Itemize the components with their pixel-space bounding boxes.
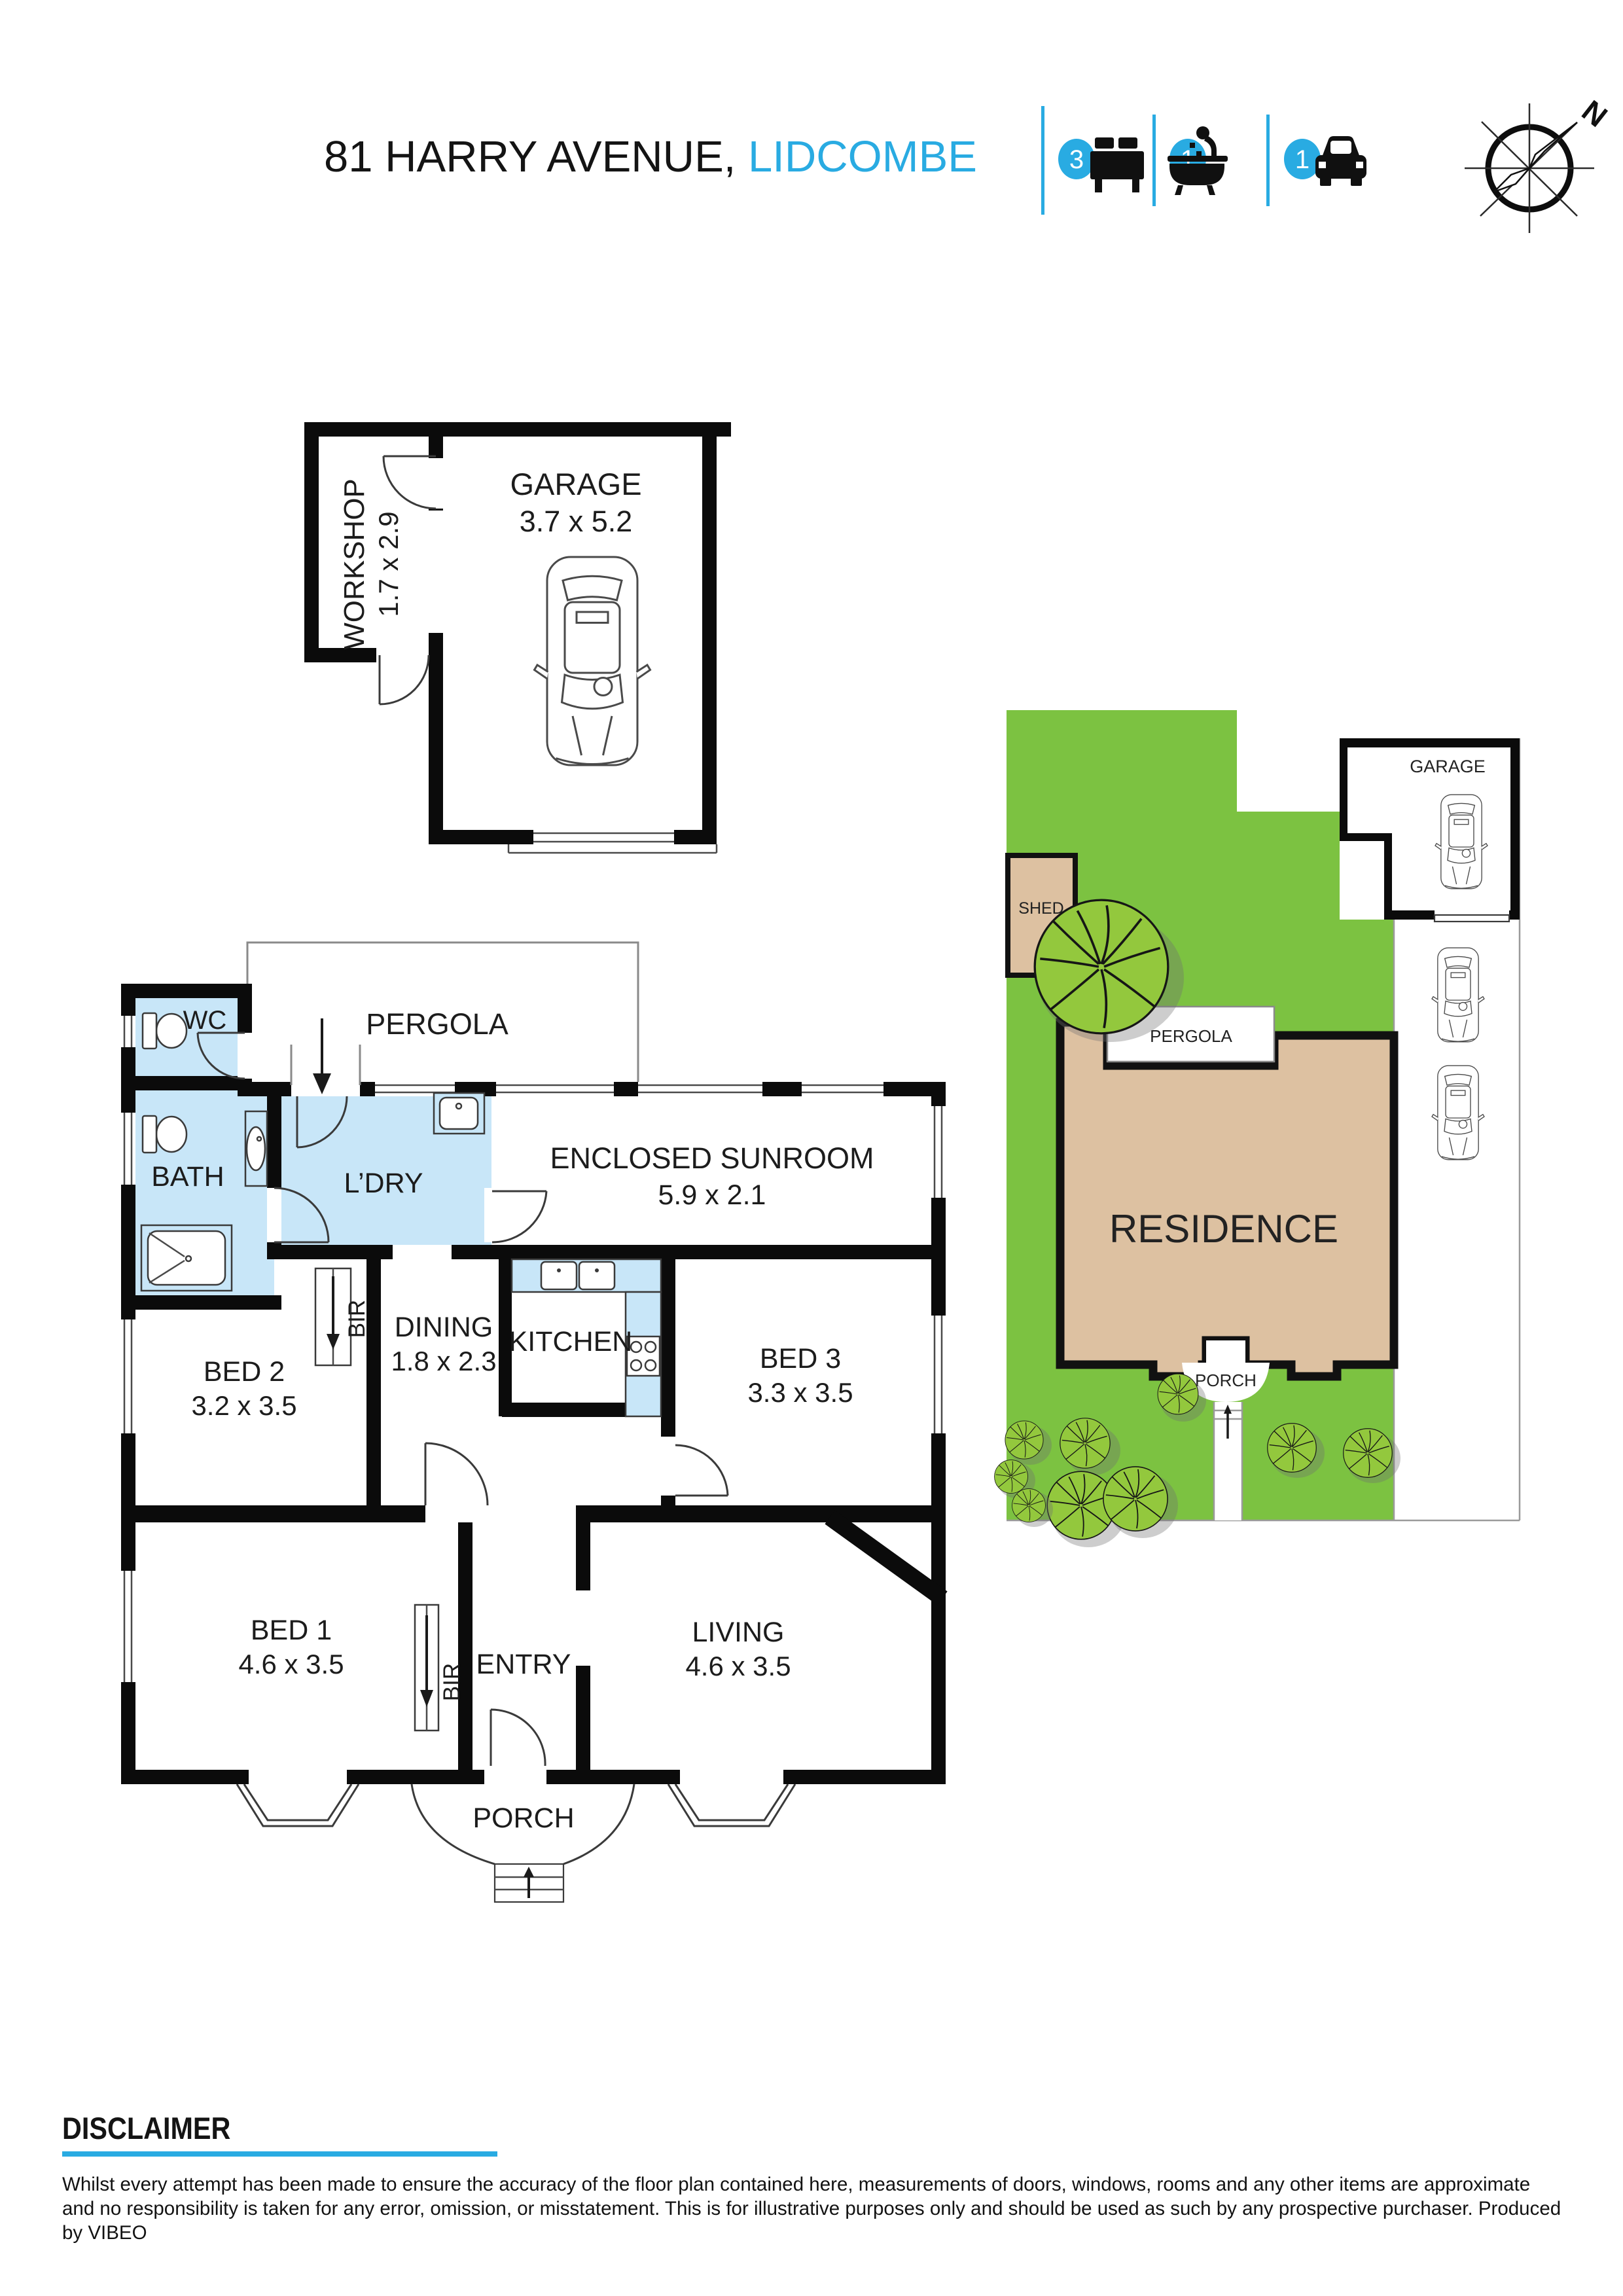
divider — [1041, 106, 1044, 215]
tree — [1035, 900, 1168, 1033]
car-2 — [1432, 948, 1484, 1042]
divider — [1152, 115, 1156, 206]
site-porch-label: PORCH — [1195, 1371, 1257, 1390]
workshop-label: WORKSHOP — [338, 478, 370, 650]
living-chamfer-wall — [830, 1517, 942, 1598]
bed2-dim: 3.2 x 3.5 — [191, 1390, 296, 1421]
header: 81 HARRY AVENUE, LIDCOMBE 3 — [324, 94, 1614, 233]
tree — [995, 1460, 1028, 1494]
disclaimer-section: DISCLAIMER Whilst every attempt has been… — [62, 2110, 1567, 2245]
laundry-sink-icon — [434, 1093, 484, 1134]
workshop-dim: 1.7 x 2.9 — [373, 511, 404, 617]
site-pergola-label: PERGOLA — [1150, 1026, 1232, 1046]
window — [121, 1016, 135, 1047]
window — [121, 1113, 135, 1185]
window — [638, 1082, 762, 1096]
car-1 — [1435, 795, 1488, 889]
tree — [1158, 1374, 1198, 1414]
bath-label: BATH — [151, 1161, 224, 1193]
floorplan-page: 81 HARRY AVENUE, LIDCOMBE 3 — [0, 0, 1623, 2296]
window — [931, 1106, 946, 1198]
bed3-dim: 3.3 x 3.5 — [747, 1377, 853, 1408]
porch-label: PORCH — [473, 1803, 574, 1834]
tree — [1005, 1421, 1043, 1459]
sunroom-label: ENCLOSED SUNROOM — [550, 1141, 874, 1175]
compass-north-label: N — [1576, 94, 1614, 134]
disclaimer-body: Whilst every attempt has been made to en… — [62, 2172, 1567, 2245]
garage-label: GARAGE — [510, 467, 641, 501]
window — [931, 1316, 946, 1433]
basin-icon — [245, 1111, 267, 1186]
address-suburb: LIDCOMBE — [748, 132, 977, 181]
property-stats: 3 1 — [1041, 106, 1366, 215]
pergola-entry — [291, 1018, 360, 1096]
tree — [1012, 1489, 1046, 1522]
bed-icon — [1090, 137, 1144, 192]
tree — [1344, 1429, 1393, 1478]
site-plan: GARAGE SHED PERGOLA RESIDENCE PORCH — [995, 710, 1520, 1547]
living-label: LIVING — [692, 1617, 785, 1648]
kitchen-label: KITCHEN — [509, 1326, 633, 1357]
shower-icon — [141, 1225, 232, 1291]
shed-label: SHED — [1018, 899, 1063, 918]
car-3 — [1432, 1066, 1484, 1160]
living-dim: 4.6 x 3.5 — [685, 1651, 791, 1681]
bed-stat: 3 — [1058, 137, 1144, 192]
window — [802, 1082, 883, 1096]
porch-structure — [412, 1784, 634, 1902]
bir-bed1-label: BIR — [439, 1663, 465, 1701]
main-floor-plan: WC PERGOLA BATH L’DRY ENCLOSED SUNROOM 5… — [121, 942, 946, 1902]
bir-bed2-label: BIR — [344, 1300, 370, 1338]
window — [496, 1082, 614, 1096]
page-title: 81 HARRY AVENUE, LIDCOMBE — [324, 132, 977, 181]
dining-dim: 1.8 x 2.3 — [391, 1346, 496, 1376]
tree — [1103, 1467, 1168, 1531]
bed2-label: BED 2 — [204, 1356, 285, 1388]
toilet-icon — [143, 1116, 187, 1153]
garage-dim: 3.7 x 5.2 — [520, 505, 633, 538]
disclaimer-divider — [62, 2151, 497, 2157]
bed3-label: BED 3 — [760, 1343, 841, 1374]
floorplan-canvas: 81 HARRY AVENUE, LIDCOMBE 3 — [0, 0, 1623, 2296]
laundry-label: L’DRY — [344, 1168, 423, 1199]
car-in-garage-plan — [535, 557, 651, 765]
bath-stat: 1 — [1168, 126, 1228, 195]
tree — [1060, 1418, 1110, 1468]
divider — [1266, 115, 1270, 206]
disclaimer-heading: DISCLAIMER — [62, 2110, 1387, 2146]
window — [121, 1571, 135, 1682]
garage-plan: WORKSHOP 1.7 x 2.9 GARAGE 3.7 x 5.2 — [304, 422, 731, 853]
bed1-dim: 4.6 x 3.5 — [238, 1649, 344, 1679]
entry-label: ENTRY — [476, 1649, 571, 1680]
bir-robe-bed1 — [415, 1605, 438, 1731]
compass-icon: N — [1465, 94, 1614, 233]
address-street: 81 HARRY AVENUE, — [324, 132, 736, 181]
car-stat: 1 — [1284, 136, 1366, 186]
tree — [1268, 1424, 1317, 1473]
car-icon — [1315, 136, 1366, 186]
sunroom-dim: 5.9 x 2.1 — [658, 1179, 766, 1211]
bed1-label: BED 1 — [251, 1615, 332, 1646]
bath-icon — [1168, 126, 1228, 195]
toilet-icon — [143, 1013, 187, 1049]
site-garage-label: GARAGE — [1410, 757, 1486, 776]
wc-label: WC — [183, 1006, 227, 1035]
dining-label: DINING — [395, 1312, 493, 1343]
residence-label: RESIDENCE — [1109, 1207, 1338, 1251]
window — [121, 1319, 135, 1433]
pergola-label: PERGOLA — [366, 1007, 508, 1041]
car-count: 1 — [1295, 145, 1310, 174]
bed-count: 3 — [1069, 145, 1084, 174]
site-garage: GARAGE — [1340, 738, 1520, 922]
